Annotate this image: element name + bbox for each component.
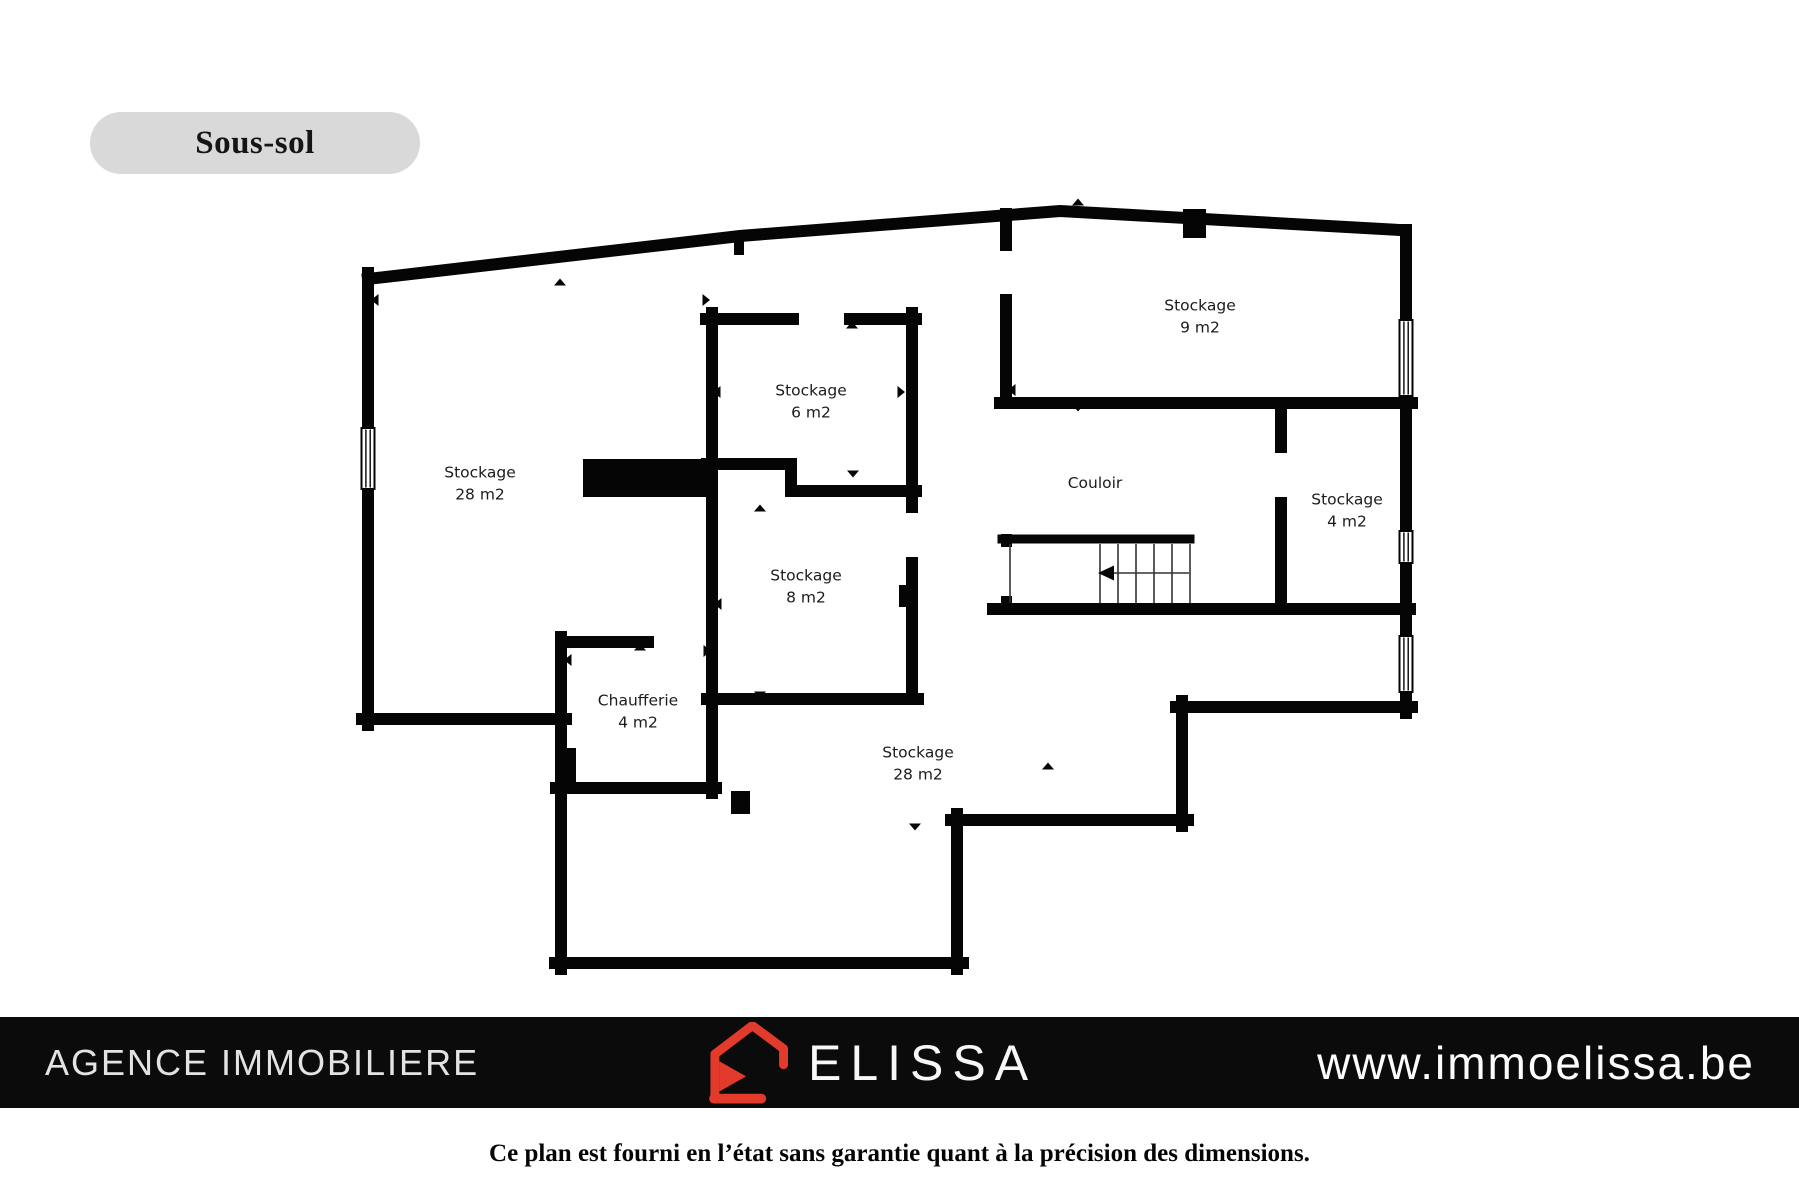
window-right-middle	[1400, 531, 1413, 563]
website-url: www.immoelissa.be	[1317, 1017, 1755, 1108]
windows	[362, 320, 1413, 692]
room-name: Stockage	[1164, 295, 1236, 317]
room-name: Stockage	[1311, 489, 1383, 511]
window-right-top	[1400, 320, 1413, 396]
stairs	[1010, 544, 1190, 603]
room-name: Chaufferie	[598, 690, 678, 712]
room-name: Couloir	[1068, 472, 1123, 494]
wall-stub-8m2	[899, 585, 917, 607]
room-area: 6 m2	[775, 402, 847, 424]
room-name: Stockage	[882, 742, 954, 764]
room-name: Stockage	[770, 565, 842, 587]
agency-name: AGENCE IMMOBILIERE	[45, 1017, 479, 1108]
brand-logo: ELISSA	[706, 1017, 1037, 1108]
room-area: 4 m2	[1311, 511, 1383, 533]
room-label-stockage-8: Stockage 8 m2	[770, 565, 842, 610]
wall-stub-top	[734, 238, 744, 255]
brand-name: ELISSA	[808, 1034, 1037, 1092]
room-label-stockage-28-bottom: Stockage 28 m2	[882, 742, 954, 787]
walls	[362, 211, 1412, 969]
room-label-couloir: Couloir	[1068, 472, 1123, 494]
window-left	[362, 428, 375, 489]
room-name: Stockage	[775, 380, 847, 402]
room-label-stockage-28-left: Stockage 28 m2	[444, 462, 516, 507]
room-label-stockage-9: Stockage 9 m2	[1164, 295, 1236, 340]
room-label-stockage-6: Stockage 6 m2	[775, 380, 847, 425]
room-area: 28 m2	[444, 484, 516, 506]
room-label-chaufferie: Chaufferie 4 m2	[598, 690, 678, 735]
house-outline-icon	[706, 1022, 788, 1104]
column	[731, 791, 750, 814]
disclaimer-text: Ce plan est fourni en l’état sans garant…	[0, 1140, 1799, 1168]
direction-markers	[371, 199, 1287, 831]
room-area: 28 m2	[882, 764, 954, 786]
chimney-block	[583, 459, 711, 497]
window-right-bottom	[1400, 636, 1413, 692]
room-label-stockage-4: Stockage 4 m2	[1311, 489, 1383, 534]
room-area: 8 m2	[770, 587, 842, 609]
wall-stub-chaufferie	[565, 748, 576, 788]
room-name: Stockage	[444, 462, 516, 484]
room-area: 4 m2	[598, 712, 678, 734]
room-area: 9 m2	[1164, 317, 1236, 339]
wall-stub-9m2	[1183, 209, 1206, 238]
